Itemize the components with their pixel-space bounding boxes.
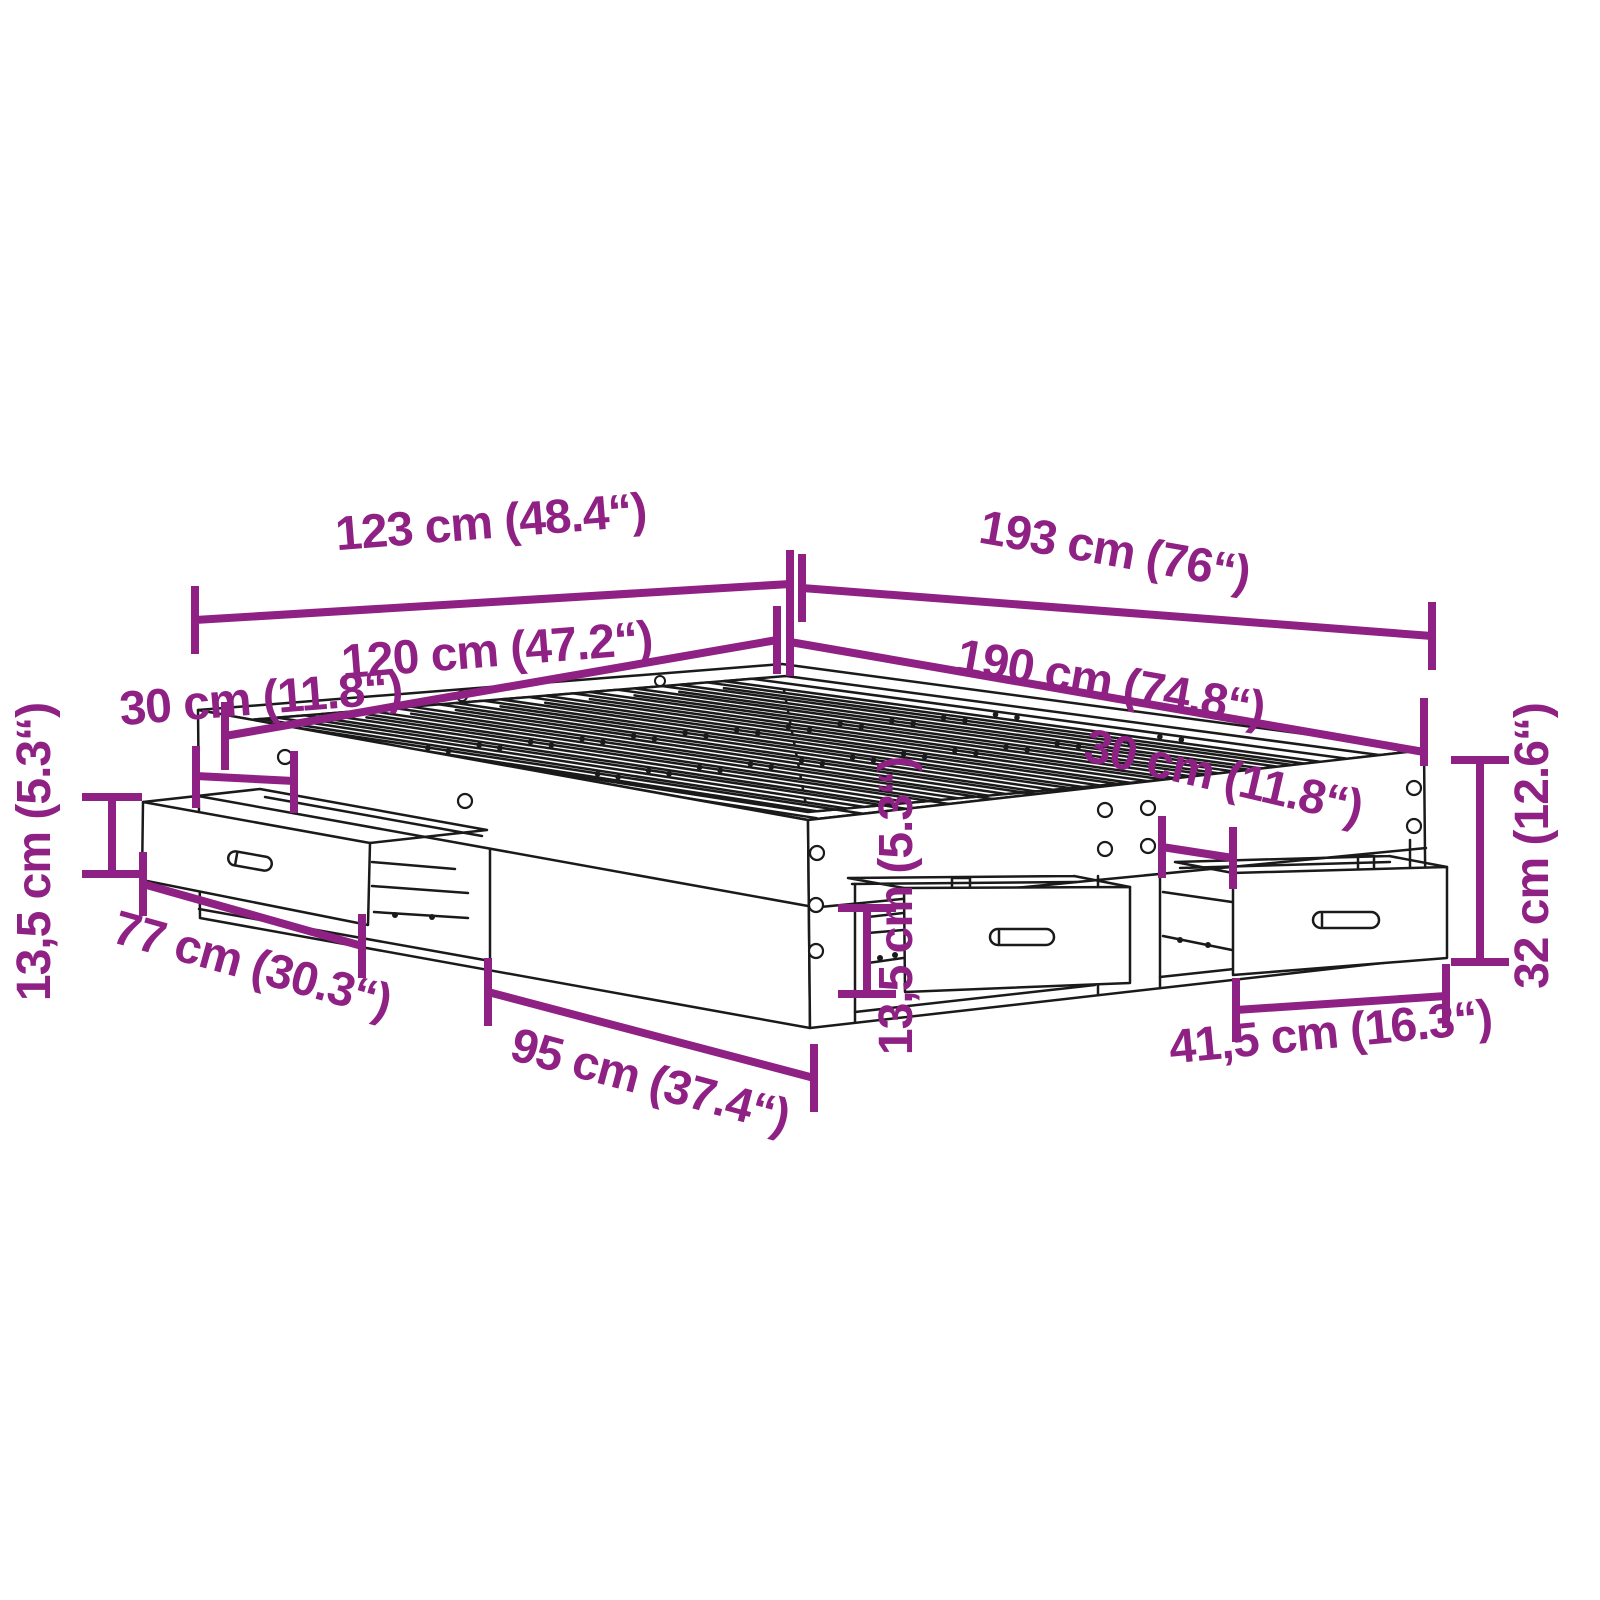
diagram-canvas: 123 cm (48.4“) 193 cm (76“) 120 cm (47.2… bbox=[0, 0, 1600, 1600]
dim-left-drawer-height-bracket bbox=[82, 797, 142, 874]
middle-drawer-front bbox=[904, 887, 1130, 992]
dim-frame-height: 32 cm (12.6“) bbox=[1451, 703, 1559, 989]
dim-outer-length: 193 cm (76“) bbox=[802, 501, 1432, 670]
dim-frame-height-label: 32 cm (12.6“) bbox=[1506, 703, 1559, 989]
dim-left-drawer-height-label: 13,5 cm (5.3“) bbox=[8, 703, 61, 1001]
dim-frame-height-bracket bbox=[1451, 760, 1509, 962]
dim-middle-drawer-height-label: 13,5 cm (5.3“) bbox=[870, 757, 923, 1055]
bed-frame-dimension-diagram: 123 cm (48.4“) 193 cm (76“) 120 cm (47.2… bbox=[0, 0, 1600, 1600]
dim-outer-width-label: 123 cm (48.4“) bbox=[333, 484, 648, 561]
dim-outer-length-label: 193 cm (76“) bbox=[975, 501, 1254, 601]
right-drawer-front bbox=[1233, 867, 1447, 975]
